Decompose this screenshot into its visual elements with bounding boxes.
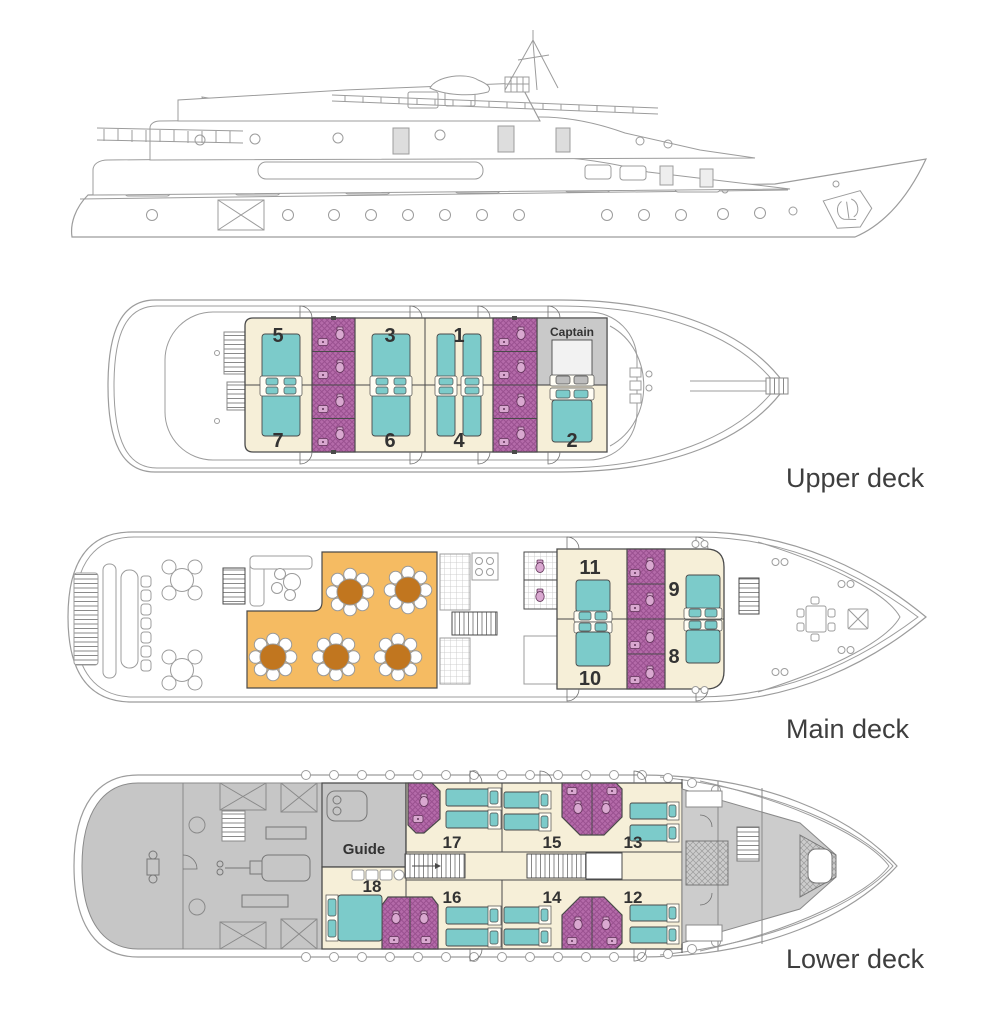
cabin-number-5: 5 (272, 325, 283, 347)
lower-deck-plan: Guide (74, 771, 925, 975)
bathroom-18-16 (382, 897, 438, 949)
stair-landing (586, 853, 622, 879)
main-deck-plan: 11 9 10 8 Main deck (68, 532, 926, 744)
ship-deck-plan-figure: 5 3 1 Captain 7 6 4 2 Upper deck (0, 0, 984, 1024)
bed-cabin-10 (574, 622, 612, 666)
captain-label: Captain (550, 325, 594, 339)
ship-side-profile (72, 30, 926, 237)
dining-table (384, 566, 432, 614)
upper-deck-plan: 5 3 1 Captain 7 6 4 2 Upper deck (108, 300, 925, 493)
crew-stairs (737, 827, 759, 861)
dining-table (374, 633, 422, 681)
cabin-number-2: 2 (566, 430, 577, 452)
cabin-number-17: 17 (443, 833, 462, 852)
bed-cabin-8 (684, 620, 722, 663)
cabin-number-16: 16 (443, 888, 462, 907)
bed-cabin-5-7 (260, 334, 302, 436)
cabin-number-15: 15 (543, 833, 562, 852)
bed-cabin-11 (574, 580, 612, 622)
cabin-number-8: 8 (668, 646, 679, 668)
cabin-number-18: 18 (363, 877, 382, 896)
main-stairs-bow (739, 578, 759, 614)
dining-table (312, 633, 360, 681)
cabin-number-10: 10 (579, 668, 601, 690)
main-stairs-aft (223, 568, 245, 604)
cabin-number-6: 6 (384, 430, 395, 452)
bed-cabin-9 (684, 575, 722, 619)
cabin-number-11: 11 (579, 557, 600, 579)
engine-room (82, 783, 322, 949)
deck-label-lower: Lower deck (786, 944, 925, 974)
cabin-number-9: 9 (668, 579, 679, 601)
deck-label-main: Main deck (786, 714, 910, 744)
cabin-number-7: 7 (272, 430, 283, 452)
upper-stairs-2 (227, 382, 247, 410)
bed-captain (550, 340, 594, 386)
upper-bathroom-column-2 (493, 316, 537, 454)
cabin-number-1: 1 (453, 325, 464, 347)
deck-label-upper: Upper deck (786, 463, 925, 493)
cabin-number-13: 13 (624, 833, 643, 852)
deck-plan-canvas: 5 3 1 Captain 7 6 4 2 Upper deck (0, 0, 984, 1024)
main-stairs-mid (452, 612, 497, 635)
dining-table (249, 633, 297, 681)
bar-table (284, 574, 301, 591)
cabin-number-3: 3 (384, 325, 395, 347)
dining-table (326, 568, 374, 616)
bed-cabin-18 (326, 895, 382, 941)
bed-cabin-3-6 (370, 334, 412, 436)
guide-label: Guide (343, 841, 386, 858)
guide-cabin: Guide (322, 783, 406, 867)
dining-room (247, 552, 437, 688)
upper-bathroom-column-1 (312, 316, 355, 454)
cabin-number-12: 12 (624, 888, 643, 907)
cabin-number-4: 4 (453, 430, 465, 452)
lower-stairs-stbd (527, 854, 587, 878)
engine-room-stairs (222, 811, 245, 841)
cabin-number-14: 14 (543, 888, 562, 907)
main-bathroom-column (627, 549, 665, 689)
upper-stairs (224, 332, 247, 374)
